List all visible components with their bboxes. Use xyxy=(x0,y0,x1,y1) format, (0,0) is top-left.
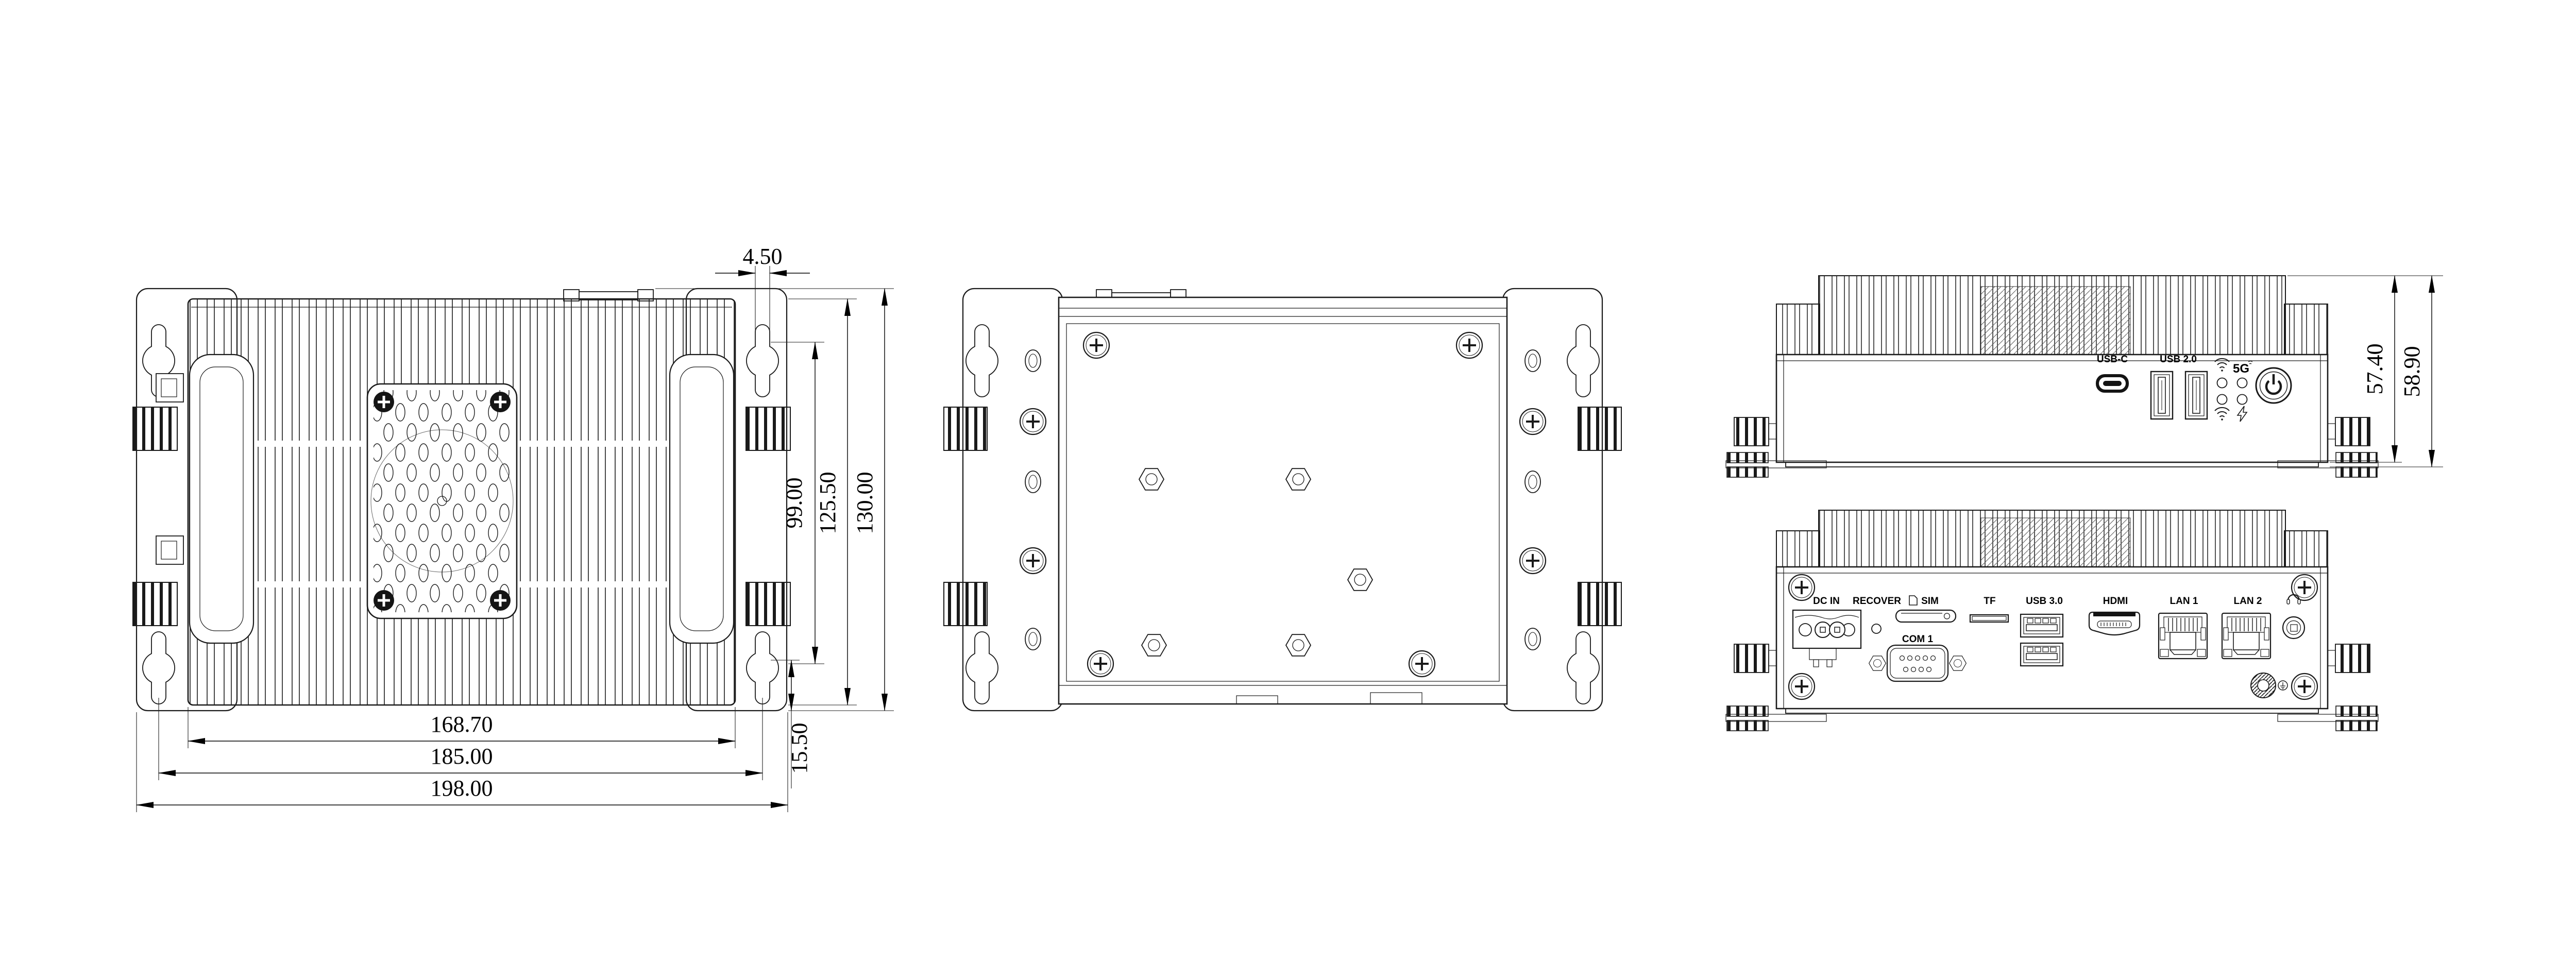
ground-stud xyxy=(2251,673,2276,698)
usb-3-0-port xyxy=(2021,614,2063,637)
audio-jack xyxy=(2283,617,2304,639)
phillips-screw xyxy=(1020,409,1046,434)
usb-2-0-port xyxy=(2151,372,2173,419)
hdmi-port xyxy=(2089,612,2140,635)
fan-shroud xyxy=(1981,287,2130,355)
heatsink-side-pocket-left xyxy=(190,355,253,643)
antenna-connector xyxy=(746,407,790,450)
grille-screw xyxy=(490,392,511,412)
lan-1-label: LAN 1 xyxy=(2170,596,2198,607)
oval-slot xyxy=(1525,350,1540,372)
power-button-icon xyxy=(2256,368,2291,403)
phillips-screw xyxy=(1456,332,1482,358)
antenna-connector xyxy=(1578,407,1621,450)
drawing-sheet: 4.50 99.00 125.50 130.00 168.70 185.00 1… xyxy=(0,0,2576,974)
bottom-view xyxy=(944,289,1621,711)
com-1-label: COM 1 xyxy=(1902,634,1934,645)
dim-text: 198.00 xyxy=(431,776,493,801)
antenna-connector xyxy=(944,407,987,450)
grille-holes xyxy=(374,390,511,612)
rear-view: DC IN RECOVER SIM TF USB 3.0 HDMI LAN 1 … xyxy=(1726,510,2378,731)
dim-text: 185.00 xyxy=(431,744,493,769)
heatsink-side-pocket-right xyxy=(670,355,734,643)
hdmi-label: HDMI xyxy=(2103,596,2128,607)
side-connector-stub xyxy=(156,374,183,402)
heatsink-wing xyxy=(1776,304,1820,355)
phillips-screw xyxy=(2292,674,2317,699)
chassis-bottom xyxy=(1059,297,1507,704)
fan-shroud xyxy=(1981,518,2130,567)
phillips-screw xyxy=(1083,332,1109,358)
oval-slot xyxy=(1025,471,1041,493)
antenna-connector xyxy=(133,407,177,450)
usb-3-0-label: USB 3.0 xyxy=(2026,596,2063,607)
grille-screw xyxy=(374,392,394,412)
dim-text: 4.50 xyxy=(743,244,783,269)
heatsink-wing xyxy=(1776,531,1820,567)
lan-2-label: LAN 2 xyxy=(2234,596,2262,607)
technical-drawing: 4.50 99.00 125.50 130.00 168.70 185.00 1… xyxy=(0,0,2576,974)
antenna-connector xyxy=(133,582,177,626)
fan-grille xyxy=(367,384,517,618)
phillips-screw xyxy=(1088,651,1113,677)
heatsink-wing xyxy=(2284,531,2328,567)
dim-text: 58.90 xyxy=(2399,346,2425,397)
phillips-screw xyxy=(1789,575,1815,600)
recover-label: RECOVER xyxy=(1853,596,1901,607)
grille-screw xyxy=(490,590,511,611)
sim-slot xyxy=(1896,610,1956,622)
phillips-screw xyxy=(1520,548,1546,574)
usb-2-0-label: USB 2.0 xyxy=(2160,354,2197,365)
phillips-screw xyxy=(2292,575,2317,600)
phillips-screw xyxy=(1409,651,1435,677)
lan-2-port xyxy=(2222,613,2270,659)
heatsink-wing xyxy=(2284,304,2328,355)
phillips-screw xyxy=(1020,548,1046,574)
usb-2-0-port xyxy=(2185,372,2207,419)
usb-c-port xyxy=(2096,374,2129,393)
oval-slot xyxy=(1025,628,1041,650)
oval-slot xyxy=(1525,628,1540,650)
dim-text: 130.00 xyxy=(852,472,877,534)
antenna-connector xyxy=(1578,582,1621,626)
sim-label: SIM xyxy=(1921,596,1939,607)
dim-text: 57.40 xyxy=(2362,344,2387,395)
oval-slot xyxy=(1525,471,1540,493)
grille-screw xyxy=(374,590,394,611)
dc-in-label: DC IN xyxy=(1813,596,1840,607)
dim-text: 15.50 xyxy=(787,723,812,774)
tf-label: TF xyxy=(1984,596,1995,607)
cellular-5g-label: 5G xyxy=(2233,362,2249,376)
side-connector-stub xyxy=(156,536,183,564)
phillips-screw xyxy=(1789,674,1815,699)
usb-c-label: USB-C xyxy=(2097,354,2128,365)
lan-1-port xyxy=(2159,613,2207,659)
oval-slot xyxy=(1025,350,1041,372)
dim-text: 99.00 xyxy=(782,478,807,529)
usb-3-0-port xyxy=(2021,643,2063,666)
antenna-connector xyxy=(944,582,987,626)
phillips-screw xyxy=(1520,409,1546,434)
dim-text: 168.70 xyxy=(431,712,493,737)
dim-text: 125.50 xyxy=(815,472,840,534)
antenna-connector xyxy=(746,582,790,626)
tf-slot xyxy=(1970,615,2008,622)
